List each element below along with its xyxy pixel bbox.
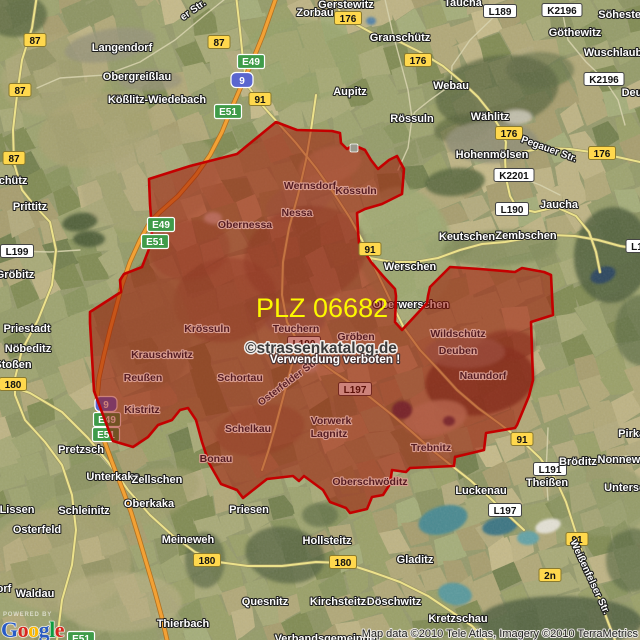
svg-text:PLZ 06682: PLZ 06682: [256, 293, 388, 323]
svg-text:Priestadt: Priestadt: [3, 323, 50, 335]
svg-text:POWERED BY: POWERED BY: [3, 612, 52, 618]
svg-text:Keutschen: Keutschen: [439, 231, 496, 243]
svg-text:orf: orf: [0, 583, 12, 595]
svg-text:91: 91: [516, 435, 528, 446]
svg-text:E51: E51: [219, 107, 237, 118]
svg-text:Zembschen: Zembschen: [495, 230, 556, 242]
svg-text:Zellschen: Zellschen: [132, 474, 183, 486]
svg-text:Thierbach: Thierbach: [157, 618, 210, 630]
svg-text:Meineweh: Meineweh: [162, 534, 215, 546]
svg-text:Langendorf: Langendorf: [92, 42, 153, 54]
svg-text:Granschütz: Granschütz: [370, 32, 431, 44]
svg-text:Krauschwitz: Krauschwitz: [131, 349, 193, 361]
svg-text:Prittitz: Prittitz: [13, 201, 48, 213]
svg-text:Obergreißlau: Obergreißlau: [103, 71, 171, 83]
svg-text:Wählitz: Wählitz: [471, 111, 510, 123]
svg-text:Lagnitz: Lagnitz: [311, 428, 348, 440]
svg-text:Priesen: Priesen: [229, 504, 269, 516]
svg-text:Nöbeditz: Nöbeditz: [5, 343, 52, 355]
svg-text:Naundorf: Naundorf: [460, 370, 507, 382]
svg-text:91: 91: [364, 245, 376, 256]
svg-text:87: 87: [213, 38, 225, 49]
svg-text:176: 176: [410, 56, 427, 67]
svg-text:E49: E49: [152, 220, 170, 231]
svg-text:K2196: K2196: [547, 6, 577, 17]
svg-text:Wuschlaub: Wuschlaub: [584, 47, 640, 59]
svg-text:176: 176: [340, 14, 357, 25]
svg-text:Döschwitz: Döschwitz: [367, 596, 422, 608]
svg-text:Oberkaka: Oberkaka: [124, 498, 175, 510]
svg-text:Kretzschau: Kretzschau: [428, 613, 487, 625]
svg-text:Schleinitz: Schleinitz: [58, 505, 110, 517]
svg-text:L189: L189: [489, 7, 512, 18]
svg-text:Untersch: Untersch: [604, 482, 640, 494]
svg-text:Kößlitz-Wiedebach: Kößlitz-Wiedebach: [108, 94, 207, 106]
svg-text:Schortau: Schortau: [217, 372, 263, 384]
svg-text:E51: E51: [72, 634, 90, 640]
svg-text:Luckenau: Luckenau: [455, 485, 506, 497]
svg-text:176: 176: [594, 149, 611, 160]
svg-text:180: 180: [335, 558, 352, 569]
svg-text:Waldau: Waldau: [16, 588, 55, 600]
svg-text:Nonnewitz: Nonnewitz: [598, 454, 640, 466]
svg-text:E49: E49: [242, 57, 260, 68]
svg-text:180: 180: [5, 380, 22, 391]
svg-text:Göthewitz: Göthewitz: [549, 27, 602, 39]
svg-text:Taucha: Taucha: [444, 0, 483, 9]
svg-text:Kössuln: Kössuln: [335, 185, 376, 197]
svg-text:Werschen: Werschen: [384, 261, 437, 273]
svg-text:Pirkau: Pirkau: [618, 428, 640, 440]
svg-text:Teuchern: Teuchern: [273, 323, 319, 335]
svg-text:Krössuln: Krössuln: [184, 323, 230, 335]
svg-text:Quesnitz: Quesnitz: [242, 596, 289, 608]
svg-text:E51: E51: [146, 237, 164, 248]
svg-text:Kirchsteitz: Kirchsteitz: [310, 596, 367, 608]
svg-text:K2201: K2201: [499, 171, 529, 182]
svg-text:Söhesten: Söhesten: [598, 9, 640, 21]
svg-text:9: 9: [239, 76, 245, 87]
svg-text:L190: L190: [501, 205, 524, 216]
svg-text:Bröditz: Bröditz: [559, 456, 597, 468]
svg-text:Wildschütz: Wildschütz: [430, 328, 485, 340]
svg-text:Gröbitz: Gröbitz: [0, 269, 35, 281]
svg-text:Reußen: Reußen: [124, 372, 163, 384]
svg-text:Hollsteitz: Hollsteitz: [303, 535, 352, 547]
svg-text:Wernsdorf: Wernsdorf: [284, 180, 337, 192]
svg-text:Aupitz: Aupitz: [333, 86, 367, 98]
svg-text:schütz: schütz: [0, 175, 28, 187]
svg-text:Trebnitz: Trebnitz: [411, 442, 451, 454]
svg-text:176: 176: [501, 129, 518, 140]
svg-text:Pretzsch: Pretzsch: [58, 444, 104, 456]
svg-text:Theißen: Theißen: [526, 477, 568, 489]
svg-text:Gerstewitz: Gerstewitz: [318, 0, 374, 11]
svg-text:Deuben: Deuben: [439, 345, 478, 357]
svg-text:Schelkau: Schelkau: [225, 423, 271, 435]
svg-text:Hohenmölsen: Hohenmölsen: [456, 149, 529, 161]
svg-text:Deu: Deu: [622, 87, 640, 99]
svg-text:Webau: Webau: [433, 80, 469, 92]
svg-text:2n: 2n: [544, 571, 556, 582]
svg-text:Map data ©2010 Tele Atlas, Ima: Map data ©2010 Tele Atlas, Imagery ©2010…: [362, 628, 639, 640]
svg-text:Osterfeld: Osterfeld: [13, 524, 61, 536]
svg-text:Verwendung verboten !: Verwendung verboten !: [270, 352, 400, 366]
svg-text:Kistritz: Kistritz: [124, 404, 160, 416]
svg-text:91: 91: [254, 95, 266, 106]
svg-text:L197: L197: [494, 506, 517, 517]
svg-text:Lissen: Lissen: [0, 504, 35, 516]
svg-text:Google: Google: [1, 617, 65, 640]
svg-text:180: 180: [199, 556, 216, 567]
svg-text:Rössuln: Rössuln: [390, 113, 434, 125]
svg-text:87: 87: [8, 154, 20, 165]
svg-text:K2196: K2196: [589, 75, 619, 86]
svg-text:Stoßen: Stoßen: [0, 359, 32, 371]
svg-text:Vorwerk: Vorwerk: [311, 415, 352, 427]
svg-text:L199: L199: [6, 247, 29, 258]
svg-text:Verbandsgemeinde: Verbandsgemeinde: [275, 633, 376, 640]
svg-text:Oberschwöditz: Oberschwöditz: [332, 476, 407, 488]
svg-text:87: 87: [14, 86, 26, 97]
svg-text:Obernessa: Obernessa: [218, 219, 272, 231]
svg-text:87: 87: [29, 36, 41, 47]
svg-text:Bonau: Bonau: [200, 453, 233, 465]
svg-text:Jaucha: Jaucha: [540, 199, 579, 211]
svg-text:Nessa: Nessa: [282, 207, 313, 219]
svg-text:Gladitz: Gladitz: [397, 554, 434, 566]
svg-text:L1: L1: [631, 242, 640, 253]
